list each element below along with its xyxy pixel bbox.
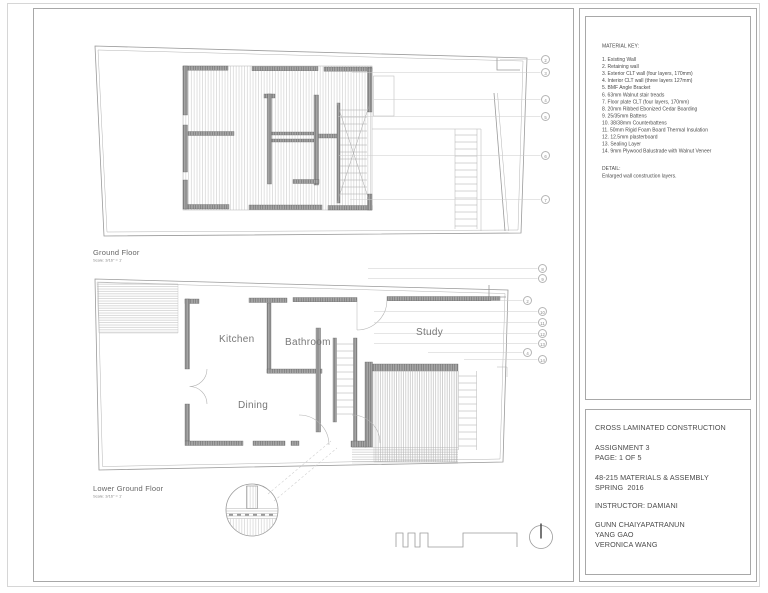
assignment-label: ASSIGNMENT 3 <box>595 443 741 453</box>
title-block: CROSS LAMINATED CONSTRUCTION ASSIGNMENT … <box>585 409 751 575</box>
author-name: YANG GAO <box>595 530 741 540</box>
lower-ground-floor-plan-drawing <box>95 269 538 471</box>
material-key-item: 7. Floor plate CLT (four layers, 170mm) <box>602 99 752 106</box>
callout-bubble: 14 <box>538 355 547 364</box>
callout-bubble: 2 <box>523 296 532 305</box>
material-key-item: 8. 20mm Ribbed Ebonized Cedar Boarding <box>602 106 752 113</box>
room-label-dining: Dining <box>238 400 358 411</box>
material-key-item: 5. BMF Angle Bracket <box>602 85 752 92</box>
room-label-bathroom: Bathroom <box>285 337 405 348</box>
callout-bubble: 11 <box>538 318 547 327</box>
detail-note-text: Enlarged wall construction layers. <box>602 173 752 180</box>
material-key-item: 13. Sealing Layer <box>602 141 752 148</box>
material-key-box: MATERIAL KEY: 1. Existing Wall 2. Retain… <box>585 16 751 400</box>
material-key-item: 1. Existing Wall <box>602 57 752 64</box>
author-name: GUNN CHAIYAPATRANUN <box>595 520 741 530</box>
callout-bubble: 6 <box>541 151 550 160</box>
material-key-item: 3. Exterior CLT wall (four layers, 170mm… <box>602 71 752 78</box>
page-number: PAGE: 1 OF 5 <box>595 453 741 463</box>
callout-bubble: 8 <box>538 264 547 273</box>
callout-bubble: 5 <box>541 112 550 121</box>
material-key-list: 1. Existing Wall 2. Retaining wall 3. Ex… <box>602 57 752 156</box>
material-key-item: 4. Interior CLT wall (three layers 127mm… <box>602 78 752 85</box>
lower-ground-floor-scale: Scale: 3/16" = 1' <box>93 494 173 499</box>
section-profile <box>396 533 517 547</box>
project-title: CROSS LAMINATED CONSTRUCTION <box>595 423 741 433</box>
callout-bubble: 9 <box>538 274 547 283</box>
ground-floor-scale: Scale: 3/16" = 1' <box>93 258 173 263</box>
instructor-label: INSTRUCTOR: DAMIANI <box>595 501 741 511</box>
callout-bubble: 7 <box>541 195 550 204</box>
callout-bubble: 4 <box>523 348 532 357</box>
callout-bubble: 4 <box>541 95 550 104</box>
callout-bubble: 3 <box>541 68 550 77</box>
material-key-item: 14. 9mm Plywood Balustrade with Walnut V… <box>602 148 752 155</box>
callout-bubble: 2 <box>541 55 550 64</box>
wall-detail-circle <box>226 441 337 537</box>
north-arrow-icon <box>530 524 553 549</box>
course-label: 48-215 MATERIALS & ASSEMBLY <box>595 473 741 483</box>
callout-bubble: 13 <box>538 339 547 348</box>
authors-list: GUNN CHAIYAPATRANUN YANG GAO VERONICA WA… <box>595 520 741 550</box>
material-key-item: 11. 50mm Rigid Foam Board Thermal Insula… <box>602 127 752 134</box>
side-panel: MATERIAL KEY: 1. Existing Wall 2. Retain… <box>579 8 757 582</box>
ground-floor-plan-drawing <box>95 46 541 236</box>
material-key-item: 9. 25/35mm Battens <box>602 113 752 120</box>
material-key-item: 2. Retaining wall <box>602 64 752 71</box>
term-label: SPRING 2016 <box>595 483 741 493</box>
author-name: VERONICA WANG <box>595 540 741 550</box>
callout-bubble: 10 <box>538 307 547 316</box>
ground-floor-label: Ground Floor <box>93 248 140 257</box>
material-key-item: 10. 38/38mm Counterbattens <box>602 120 752 127</box>
drawing-sheet: Ground Floor Scale: 3/16" = 1' Lower Gro… <box>0 0 768 593</box>
material-key-title: MATERIAL KEY: <box>602 43 752 50</box>
material-key-item: 12. 12.5mm plasterboard <box>602 134 752 141</box>
callout-bubble: 12 <box>538 329 547 338</box>
lower-ground-floor-label: Lower Ground Floor <box>93 484 163 493</box>
room-label-study: Study <box>416 327 536 338</box>
material-key-item: 6. 63mm Walnut stair treads <box>602 92 752 99</box>
detail-note-title: DETAIL: <box>602 166 752 173</box>
